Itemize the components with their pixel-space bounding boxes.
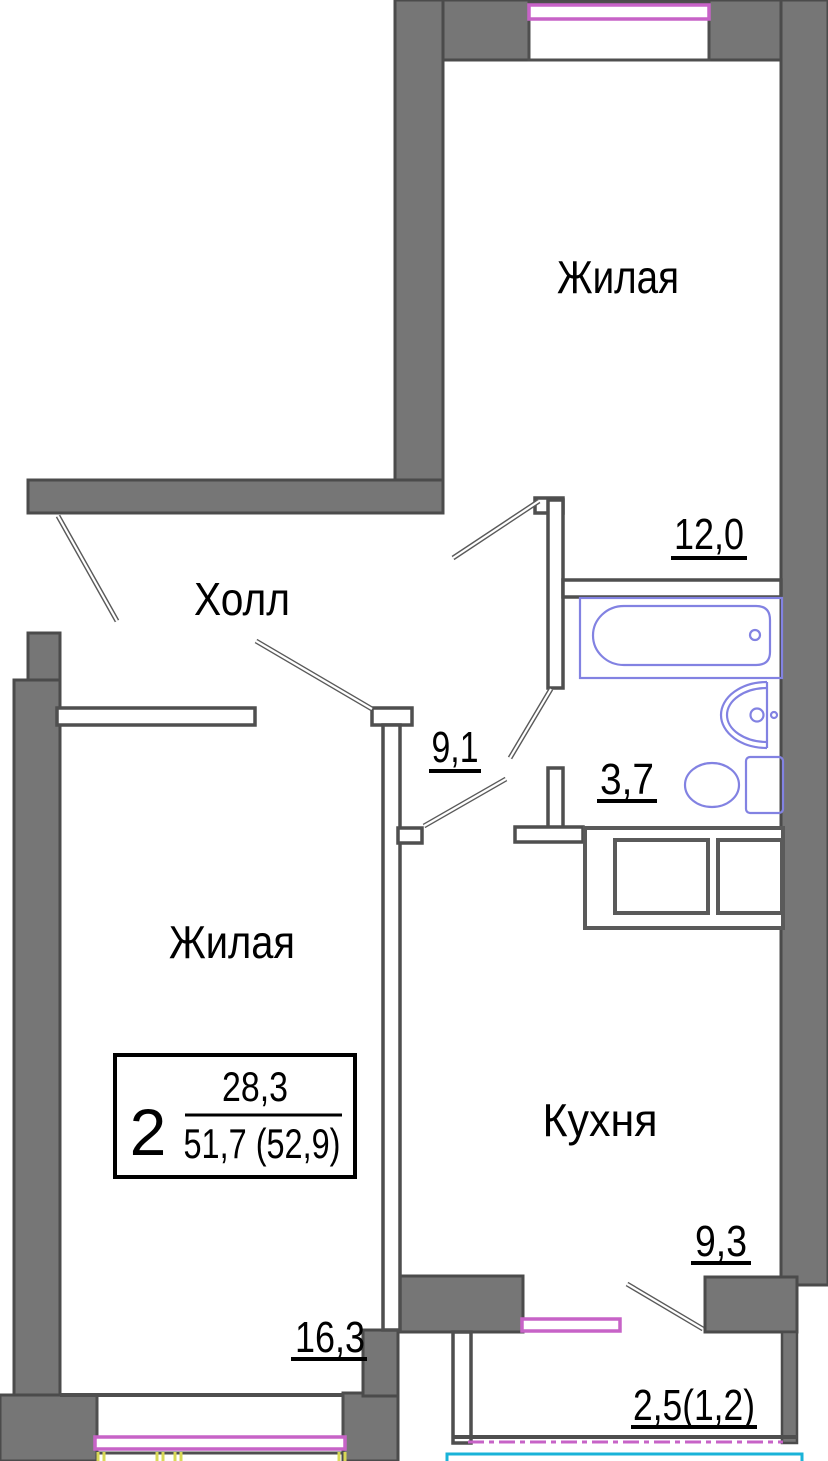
window-top — [529, 5, 709, 19]
floor-plan-drawing: Жилая 12,0 Холл 9,1 3,7 Жилая 16,3 Кухня… — [0, 0, 828, 1461]
room-area-kitchen: 9,3 — [695, 1217, 747, 1266]
floor-plan: Жилая 12,0 Холл 9,1 3,7 Жилая 16,3 Кухня… — [0, 0, 828, 1461]
partition-bath-left-lower — [548, 768, 563, 828]
washbasin-inner — [727, 688, 767, 742]
wall-kitchen-bottom-left — [398, 1276, 523, 1332]
wall-bottom-mid — [343, 1393, 398, 1461]
room-label-hall: Холл — [194, 573, 290, 625]
duct-block — [585, 828, 783, 928]
room-area-hall: 9,1 — [432, 723, 479, 772]
bathroom-door — [510, 689, 551, 758]
window-bottom — [95, 1437, 345, 1449]
room-area-balcony: 2,5(1,2) — [633, 1381, 755, 1430]
stamp-living-area: 28,3 — [222, 1063, 288, 1110]
stamp-rooms-count: 2 — [130, 1095, 167, 1169]
wall-balcony-right — [782, 1332, 797, 1443]
apartment-stamp: 2 28,3 51,7 (52,9) — [115, 1055, 355, 1177]
partition-stub-living — [372, 708, 412, 725]
partition-kitchen-jamb — [398, 828, 422, 843]
duct-shaft-left — [615, 840, 708, 913]
living-top-door — [453, 501, 539, 558]
room-area-living-left: 16,3 — [295, 1313, 365, 1362]
wall-top-room-left — [395, 0, 443, 513]
partition-hall-living — [57, 708, 255, 725]
room-area-bathroom: 3,7 — [600, 755, 654, 804]
entrance-door — [58, 516, 117, 621]
partition-bath-bottom — [515, 827, 583, 842]
kitchen-door — [424, 779, 506, 826]
window-balcony-door — [522, 1319, 620, 1331]
balcony-door — [627, 1284, 703, 1329]
living-left-door — [256, 641, 372, 709]
wall-left-upper — [28, 633, 60, 683]
room-area-living-top: 12,0 — [674, 510, 744, 559]
room-label-living-left: Жилая — [169, 916, 295, 968]
room-label-living-top: Жилая — [557, 251, 679, 303]
washbasin-faucet — [771, 712, 777, 718]
wall-bottom-left — [0, 1395, 97, 1461]
bathtub-drain — [750, 630, 760, 640]
toilet-bowl — [685, 763, 739, 807]
wall-right — [781, 0, 828, 1285]
wall-balcony-left — [453, 1332, 471, 1443]
balcony-outer-glazing — [447, 1454, 802, 1461]
room-label-kitchen: Кухня — [543, 1094, 658, 1146]
partition-bath-left — [548, 500, 563, 688]
wall-kitchen-bottom-right — [705, 1277, 797, 1332]
toilet-tank — [746, 757, 783, 813]
partition-living-kitchen — [383, 725, 400, 1330]
bathtub — [593, 606, 770, 665]
washbasin-drain — [751, 709, 764, 722]
partition-room-bath — [563, 580, 781, 597]
stamp-total-area: 51,7 (52,9) — [184, 1120, 341, 1167]
duct-shaft-right — [718, 840, 782, 913]
wall-hall-top — [28, 480, 443, 513]
wall-bottom-mid-column — [363, 1330, 398, 1396]
wall-left-main — [14, 680, 60, 1395]
